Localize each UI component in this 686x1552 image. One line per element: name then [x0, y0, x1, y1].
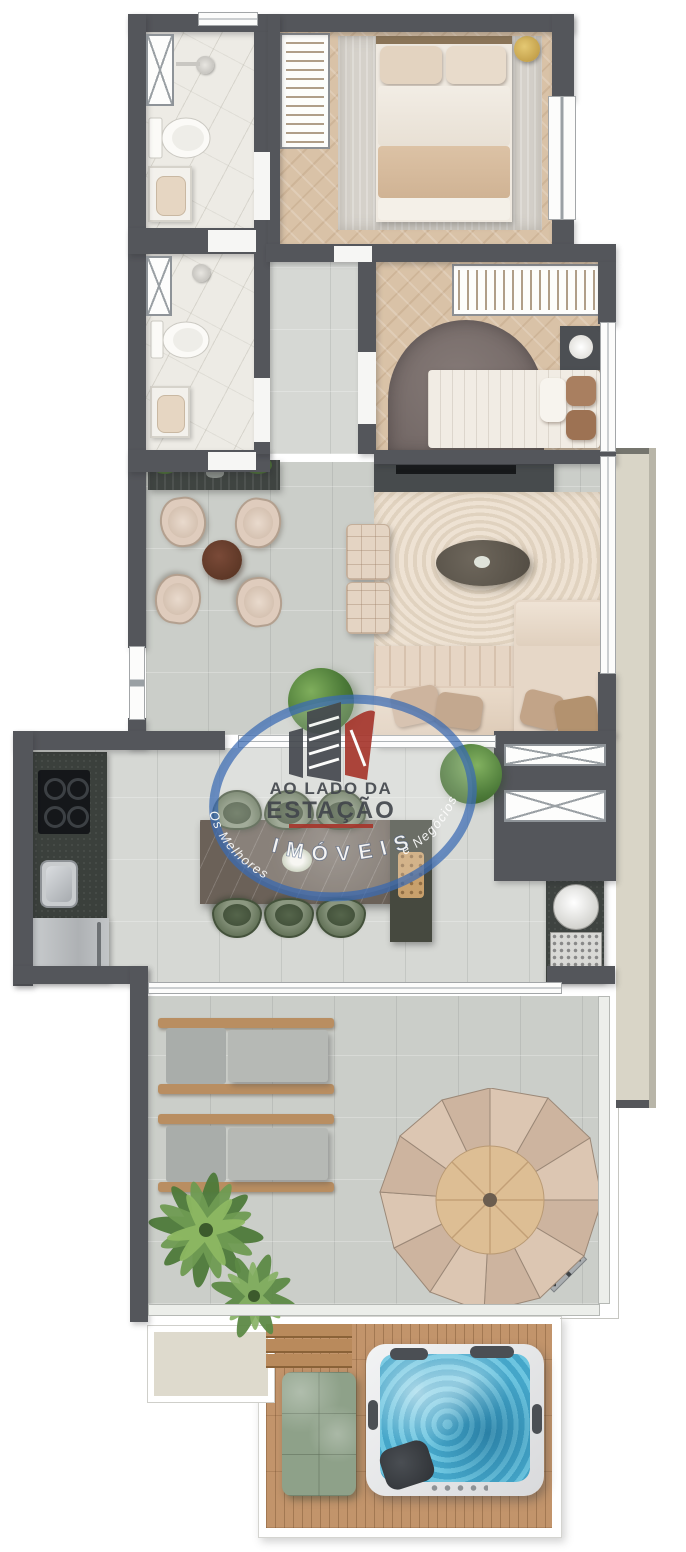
wall-bed2-bottom — [374, 450, 616, 464]
door-bath2-side — [254, 378, 270, 442]
watermark-line-2: ESTAÇÃO — [266, 796, 396, 824]
watermark-line-1: AO LADO DA — [270, 779, 393, 798]
nightstand-bedroom-2 — [560, 326, 604, 370]
kitchen-sink-basin — [46, 866, 72, 902]
pillow-single-brown-2 — [566, 410, 596, 440]
hot-tub — [366, 1344, 544, 1496]
shower-shaft-2 — [146, 256, 172, 316]
pillow-master-right — [446, 46, 506, 84]
bed-single — [428, 370, 600, 448]
round-basin-icon — [553, 884, 599, 930]
bed-master — [376, 36, 512, 222]
shower-shaft-1 — [146, 34, 174, 106]
ottoman-1 — [346, 524, 390, 580]
door-bedroom-2 — [358, 352, 376, 424]
hot-tub-controls — [428, 1484, 488, 1492]
toilet-2-icon — [150, 318, 212, 362]
kitchen-sink-icon — [40, 860, 78, 908]
wall-kitchen-top — [13, 731, 225, 750]
hot-tub-headrest-4 — [532, 1404, 542, 1434]
lounger-1-head-cushion — [166, 1028, 226, 1084]
palm-plants-icon — [128, 1168, 328, 1348]
wardrobe-bedroom-2-hangers — [458, 270, 596, 310]
table-lamp-icon — [569, 335, 593, 359]
corridor-floor — [268, 254, 360, 454]
sink-bowl-2 — [157, 395, 185, 433]
watermark-logo: AO LADO DA ESTAÇÃO IMÓVEIS Os Melhores e… — [203, 688, 485, 938]
chaise-back-cushion — [516, 602, 602, 646]
storage-cabinet-2 — [504, 790, 606, 822]
parasol-table-icon — [378, 1088, 606, 1316]
dining-chair-4-seat — [242, 584, 276, 620]
storage-cabinet-1 — [504, 744, 606, 766]
parapet-outline-v — [618, 1108, 619, 1318]
coffee-table-oval — [436, 540, 530, 586]
coffee-table-decor — [474, 556, 490, 568]
terrace-parapet-bottom — [148, 1304, 600, 1316]
spa-mattress-green — [282, 1372, 356, 1496]
wall-bed1-bottom — [266, 244, 616, 262]
sun-lounger-1 — [158, 1018, 334, 1094]
terrace-parapet-right — [598, 996, 610, 1304]
vanity-2 — [150, 386, 190, 438]
burner-4 — [67, 806, 89, 828]
lounger-1-body-cushion — [228, 1030, 328, 1082]
wardrobe-master — [280, 33, 330, 149]
door-master-bedroom — [334, 246, 372, 262]
wall-left-a — [128, 14, 146, 648]
stove-icon — [38, 770, 90, 834]
parapet-outline-h — [560, 1318, 619, 1319]
entry-window — [198, 12, 258, 26]
tv-icon — [396, 465, 516, 474]
shower-head-2-icon — [192, 264, 210, 282]
tv-console — [374, 461, 554, 493]
window-master-bedroom — [548, 96, 576, 220]
wall-terrace-left — [130, 966, 148, 1322]
floor-plan: AO LADO DA ESTAÇÃO IMÓVEIS Os Melhores e… — [0, 0, 686, 1552]
hot-tub-headrest-1 — [390, 1348, 428, 1360]
ceiling-lamp-gold-icon — [514, 36, 540, 62]
sofa-chaise — [514, 600, 604, 744]
wardrobe-master-hangers — [286, 39, 324, 143]
watermark-red-underline — [289, 824, 373, 828]
door-bathroom-1 — [208, 230, 256, 252]
door-bath1-side — [254, 152, 270, 220]
dining-chair-2-seat — [240, 505, 275, 542]
door-bathroom-2 — [208, 452, 256, 470]
pillow-single-white — [540, 378, 566, 422]
lounger-1-rail-top — [158, 1018, 334, 1028]
sink-bowl-1 — [156, 176, 186, 216]
lounger-1-rail-bottom — [158, 1084, 334, 1094]
wall-kitchen-bottom — [13, 966, 148, 984]
wall-bed2-right-a — [598, 262, 616, 324]
hot-tub-headrest-3 — [368, 1400, 378, 1430]
pillow-master-left — [380, 46, 442, 84]
shower-arm-1 — [176, 62, 200, 66]
wardrobe-bedroom-2 — [452, 264, 602, 316]
blanket-master — [378, 146, 510, 198]
burner-2 — [67, 778, 89, 800]
hot-tub-headrest-2 — [470, 1346, 514, 1358]
headboard-master — [376, 36, 512, 44]
ledge-shade — [649, 448, 656, 1108]
wall-living-right-b — [598, 672, 616, 736]
lounger-2-rail-top — [158, 1114, 334, 1124]
ottoman-2 — [346, 582, 390, 634]
foot-cushion-master — [378, 198, 510, 220]
step-3 — [266, 1354, 352, 1368]
toilet-1-icon — [148, 114, 214, 162]
duvet-master — [378, 86, 510, 146]
window-living-left — [129, 646, 145, 720]
window-bedroom-2 — [600, 322, 616, 452]
wall-top — [128, 14, 574, 32]
wall-kitchen-left — [13, 731, 33, 986]
burner-1 — [44, 778, 66, 800]
vanity-1 — [148, 166, 192, 222]
window-living-right — [600, 456, 616, 674]
dining-table-round — [202, 540, 242, 580]
wall-bed1-right-a — [552, 14, 574, 100]
exterior-ledge — [616, 448, 656, 1108]
dining-chair-1-seat — [166, 504, 200, 540]
burner-3 — [44, 806, 66, 828]
pillow-single-brown-1 — [566, 376, 596, 406]
sliding-door-terrace — [148, 982, 562, 994]
dining-chair-3-seat — [161, 581, 195, 617]
